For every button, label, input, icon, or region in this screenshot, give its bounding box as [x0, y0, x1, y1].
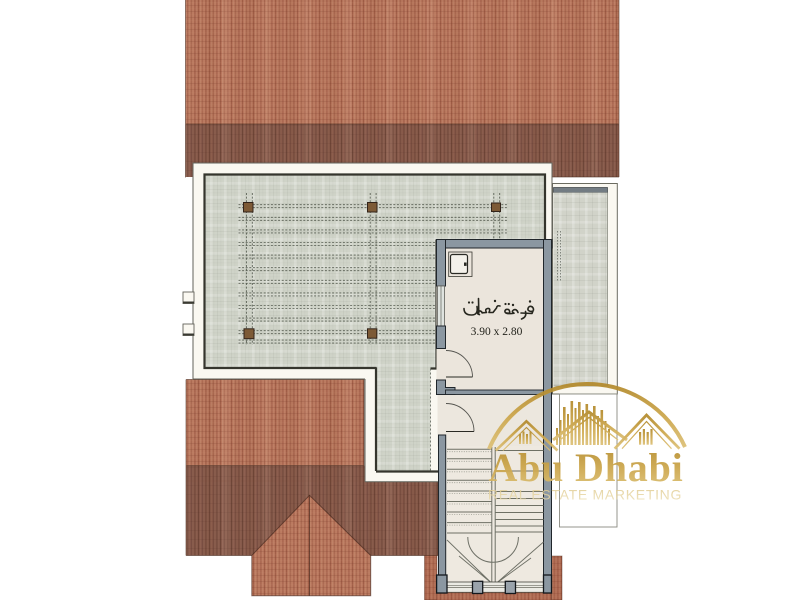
svg-text:REAL ESTATE MARKETING: REAL ESTATE MARKETING [488, 487, 682, 503]
svg-text:3.90 x 2.80: 3.90 x 2.80 [471, 326, 523, 338]
svg-text:Abu Dhabi: Abu Dhabi [488, 445, 683, 490]
